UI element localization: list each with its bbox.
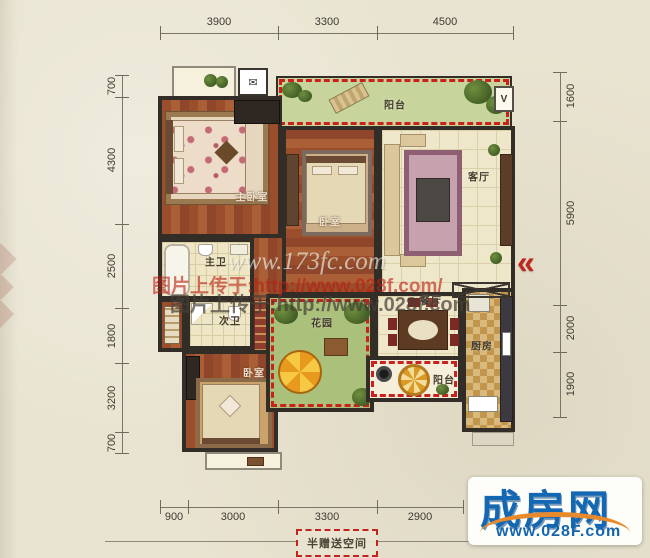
shower-corner	[191, 303, 213, 325]
dim-left-5: 3200	[106, 386, 118, 410]
plant-icon	[298, 90, 312, 102]
sink-vanity	[230, 244, 248, 255]
dimension-tick	[115, 224, 129, 225]
stove	[502, 332, 511, 356]
plant-icon	[274, 304, 298, 324]
room-label-bedroom-middle: 卧室	[319, 214, 341, 229]
dining-chair	[450, 318, 459, 330]
dim-right-3: 2000	[565, 316, 577, 340]
dimension-tick	[115, 308, 129, 309]
dim-bottom-3: 3300	[315, 511, 339, 523]
dimension-line	[160, 507, 463, 508]
room-label-master-bedroom: 主卧室	[236, 189, 269, 204]
dimension-tick	[553, 417, 567, 418]
dining-chair	[388, 334, 397, 346]
bathtub	[164, 244, 190, 296]
dimension-tick	[115, 453, 129, 454]
garden-table	[324, 338, 348, 356]
floor-medallion	[398, 364, 430, 396]
dim-top-1: 3900	[207, 16, 231, 28]
dimension-tick	[278, 500, 279, 514]
room-label-kitchen: 厨房	[471, 338, 493, 353]
room-living-room	[378, 126, 515, 296]
dim-left-1: 700	[106, 77, 118, 95]
bed-headboard	[166, 120, 173, 194]
window-sill-decor	[247, 457, 264, 466]
room-label-dining-room: 餐厅	[420, 293, 442, 308]
room-label-living-room: 客厅	[468, 169, 490, 184]
dimension-tick	[377, 26, 378, 40]
dining-chair	[450, 334, 459, 346]
dining-chair	[408, 298, 420, 307]
kitchen-service-step	[472, 432, 514, 446]
pillow	[174, 126, 184, 152]
room-label-balcony-top: 阳台	[384, 97, 406, 112]
dim-left-6: 700	[106, 434, 118, 452]
entrance-door-porch	[452, 282, 510, 298]
dim-bottom-4: 2900	[408, 511, 432, 523]
closet-nook	[158, 298, 186, 352]
room-kitchen	[462, 288, 515, 432]
bed-headboard	[306, 156, 366, 163]
dim-bottom-1: 900	[165, 511, 183, 523]
dimension-tick	[553, 305, 567, 306]
table-runner	[408, 320, 438, 340]
dim-right-4: 1900	[565, 372, 577, 396]
room-label-second-bath: 次卫	[219, 313, 241, 328]
dimension-tick	[513, 26, 514, 40]
bay-window-top	[172, 66, 236, 98]
armchair	[400, 134, 426, 147]
kitchen-sink	[468, 396, 498, 412]
dimension-tick	[553, 121, 567, 122]
dim-right-2: 5900	[565, 201, 577, 225]
patio-umbrella	[278, 350, 322, 394]
room-master-bedroom	[158, 96, 282, 238]
dimension-line	[122, 75, 123, 453]
coffee-table	[416, 178, 450, 222]
dimension-line	[560, 72, 561, 417]
ac-niche-icon: V	[494, 86, 514, 112]
plant-icon	[216, 76, 228, 88]
logo-url-text: www.028F.com	[496, 523, 621, 541]
room-label-garden: 花园	[311, 315, 333, 330]
dimension-tick	[553, 352, 567, 353]
left-edge-emblem-decoration	[0, 274, 14, 299]
sofa	[384, 144, 400, 256]
dimension-tick	[463, 500, 464, 514]
dimension-tick	[377, 500, 378, 514]
dimension-tick	[188, 500, 189, 514]
room-label-balcony-bottom: 阳台	[433, 372, 455, 387]
pillow	[312, 166, 332, 175]
left-edge-emblem-decoration	[0, 300, 14, 328]
room-master-bath	[158, 238, 254, 300]
plant-icon	[344, 302, 370, 324]
ac-unit-icon: ✉	[238, 68, 268, 96]
shoe-cabinet	[164, 306, 180, 344]
dim-bottom-2: 3000	[221, 511, 245, 523]
floorplan-image: 3900 3300 4500 700 4300 2500 1800 3200 7…	[0, 0, 650, 558]
room-dining-room	[374, 292, 462, 362]
wardrobe	[234, 100, 280, 124]
washing-machine	[376, 366, 392, 382]
wardrobe	[286, 154, 299, 226]
dim-left-3: 2500	[106, 254, 118, 278]
lounge-chair	[328, 82, 369, 114]
room-bedroom-middle	[282, 126, 378, 296]
pillow	[338, 166, 358, 175]
dimension-tick	[115, 363, 129, 364]
dimension-line	[160, 33, 513, 34]
bay-window-bottom	[205, 452, 282, 470]
dim-left-2: 4300	[106, 148, 118, 172]
dim-top-2: 3300	[315, 16, 339, 28]
room-label-bedroom-bottom: 卧室	[243, 365, 265, 380]
entrance-arrow-icon: «	[517, 252, 535, 272]
dim-top-3: 4500	[433, 16, 457, 28]
half-gift-label: 半赠送空间	[307, 535, 367, 551]
tv-cabinet	[500, 154, 513, 246]
kitchen-counter	[500, 296, 513, 422]
dim-right-1: 1600	[565, 84, 577, 108]
dimension-tick	[160, 500, 161, 514]
bed-headboard	[202, 438, 260, 444]
dimension-tick	[278, 26, 279, 40]
half-gift-note: 半赠送空间	[296, 529, 378, 557]
dimension-tick	[160, 26, 161, 40]
room-label-master-bath: 主卫	[205, 254, 227, 269]
dining-chair	[388, 318, 397, 330]
dim-left-4: 1800	[106, 324, 118, 348]
pillow	[174, 158, 184, 184]
plant-icon	[488, 144, 500, 156]
dimension-tick	[115, 97, 129, 98]
left-edge-emblem-decoration	[0, 243, 17, 274]
plant-icon	[490, 252, 502, 264]
room-garden	[266, 294, 374, 412]
dimension-tick	[553, 72, 567, 73]
